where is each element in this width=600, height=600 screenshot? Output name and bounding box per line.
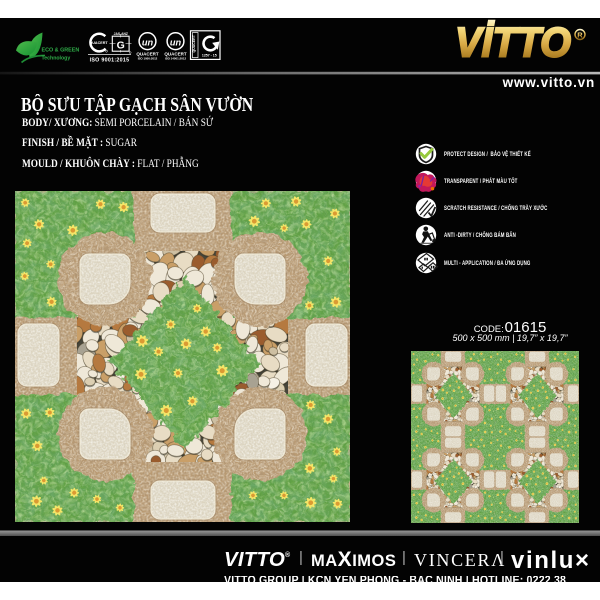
svg-text:ISO 1000:2012: ISO 1000:2012 (138, 57, 158, 61)
svg-text:ISO 14001:2012: ISO 14001:2012 (165, 57, 187, 61)
svg-text:R: R (577, 31, 583, 40)
svg-text:G: G (117, 39, 125, 51)
svg-text:un: un (170, 37, 182, 47)
svg-text:Technology: Technology (42, 56, 71, 62)
svg-text:QUACERT: QUACERT (89, 41, 108, 45)
svg-text:VİTTO: VİTTO (455, 19, 571, 66)
svg-text:ECO & GREEN: ECO & GREEN (42, 48, 80, 54)
svg-text:1257 - 15: 1257 - 15 (202, 54, 217, 58)
svg-text:un: un (142, 37, 154, 47)
svg-text:QUACERT: QUACERT (192, 34, 196, 52)
svg-text:ISO 9001:2015: ISO 9001:2015 (90, 58, 130, 64)
